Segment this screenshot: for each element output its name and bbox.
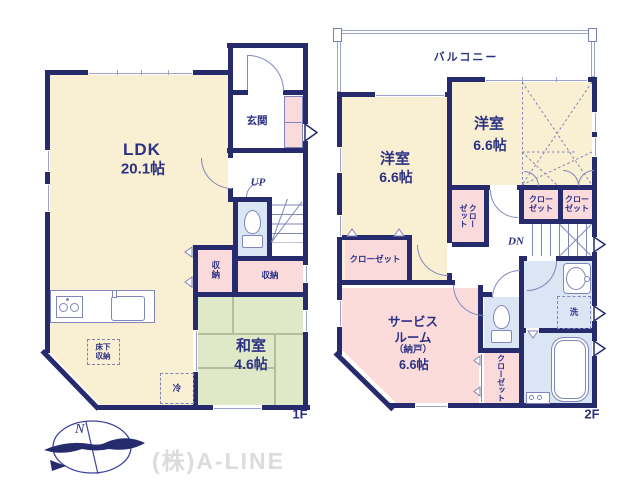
entrance-label: 玄関 [247,115,268,127]
fridge-label: 冷 [173,384,182,394]
window-divider [141,70,142,75]
balcony-post [333,28,342,42]
entrance-arrow-icon [304,123,319,142]
underfloor-storage-label: 床下 収納 [96,343,111,360]
wall [447,77,452,243]
window [375,92,445,97]
front-door-leaf [247,55,248,90]
stairs-down-treads [524,223,592,256]
wall [98,405,310,410]
stove-burner [70,303,79,312]
wall [227,43,308,48]
toilet-tank [242,235,263,248]
wall [267,202,272,256]
sliding-door-washitsu [193,330,198,372]
washbasin-knob [584,276,590,282]
bathtub-inner [554,340,586,399]
sink-icon [111,296,145,321]
wall [227,148,308,153]
window [337,147,342,173]
wall [337,97,342,147]
stairs-down-label: DN [508,236,524,249]
bath-knob [537,395,542,400]
window [337,300,342,327]
wall [45,212,50,353]
window-divider [168,70,169,75]
wall [283,90,304,95]
stairs-up-label: UP [251,177,266,190]
wall [337,237,342,300]
wall [447,242,489,247]
floor2-label: 2F [584,408,599,423]
wall [45,172,50,184]
bath-door-mark [527,330,539,339]
wall [592,77,597,112]
compass-north-label: N [74,422,85,437]
wall [558,185,563,219]
window-arrow-icon [593,340,607,357]
wall [193,70,233,75]
toilet2-door-arc [492,270,520,298]
balcony-rail-top [337,30,595,34]
bedroom-left-label: 洋室 [380,150,410,167]
wall [450,77,485,82]
closet-bedroom-left-label: クローゼット [349,255,400,265]
wall [232,245,238,292]
bedroom-left-area-label: 6.6帖 [379,169,412,185]
service-room-area-label: 6.6帖 [399,358,429,372]
service-room-label1: サービス [388,315,438,329]
wall [231,90,248,95]
floor-plan-canvas: LDK 20.1帖 玄関 UP 収納 収納 和室 4.6帖 床下 収納 冷 1F [0,0,640,480]
window [303,265,308,283]
ldk-label: LDK [123,140,161,160]
wall [479,348,524,353]
window-divider [522,77,523,82]
tatami-line [232,297,234,333]
balcony-post [588,28,597,42]
window [415,403,448,408]
double-door-mark [346,228,358,237]
washitsu-label: 和室 [236,337,266,354]
ldk-area-label: 20.1帖 [121,160,165,177]
window-divider [117,70,118,75]
window-arrow-icon [593,236,607,253]
compass-bird-shape [44,438,145,453]
storage-right-label: 収納 [261,271,278,281]
wall [337,280,455,285]
folding-door-mark [184,246,193,258]
wall [592,157,597,237]
balcony-label: バルコニー [434,52,499,65]
wall [45,70,50,150]
closet-hall-label: クロー ゼット [459,204,477,228]
faucet-icon [112,290,117,298]
bedroom-top-label: 洋室 [474,115,504,132]
stove-dot [66,298,69,301]
bedroom-top-area-label: 6.6帖 [473,137,506,153]
wall [337,173,342,215]
wall [519,190,524,224]
wall [228,48,233,158]
wall [519,219,597,224]
closet-service-door-line [481,354,482,402]
window [592,112,597,132]
bedroom-top-door-arc [490,190,518,218]
toilet-tank [491,330,512,343]
wall [45,70,88,75]
compass-icon: N [42,414,148,478]
service-room-label3: （納戸） [394,346,432,357]
shoe-cabinet-divider [284,122,303,123]
wall [337,92,375,97]
window [45,150,50,172]
window [213,405,262,410]
wall [592,356,597,408]
attic-dashed-pattern [522,82,592,185]
tatami-line [198,333,303,335]
window [592,137,597,157]
company-watermark: (株)A-LINE [152,442,285,476]
toilet-icon [493,305,510,329]
stove-burner [59,303,68,312]
storage-left-label: 収納 [210,261,220,280]
closet-service-label: クローゼット [496,354,505,402]
window [45,184,50,212]
wall [193,292,308,297]
laundry-label: 洗 [570,308,579,318]
wall [407,235,412,285]
closet-a-label: クロー ゼット [529,195,553,213]
service-room-label2: ルーム [394,331,431,345]
window [337,215,342,237]
washbasin-bowl [566,267,586,290]
window [303,310,308,332]
closet-b-label: クロー ゼット [565,195,589,213]
folding-door-mark [473,386,481,397]
window-arrow-icon [593,305,607,322]
window [485,77,588,82]
wall [303,43,308,410]
wall [484,190,489,247]
wall [233,256,308,261]
window-divider [556,77,557,82]
floor1-label: 1F [292,408,307,423]
bath-knob [529,395,534,400]
double-door-mark [393,228,405,237]
folding-door-mark [184,276,193,288]
toilet-icon [244,210,261,234]
washitsu-area-label: 4.6帖 [234,356,267,372]
tatami-line [274,333,276,405]
folding-door-mark [473,355,481,366]
